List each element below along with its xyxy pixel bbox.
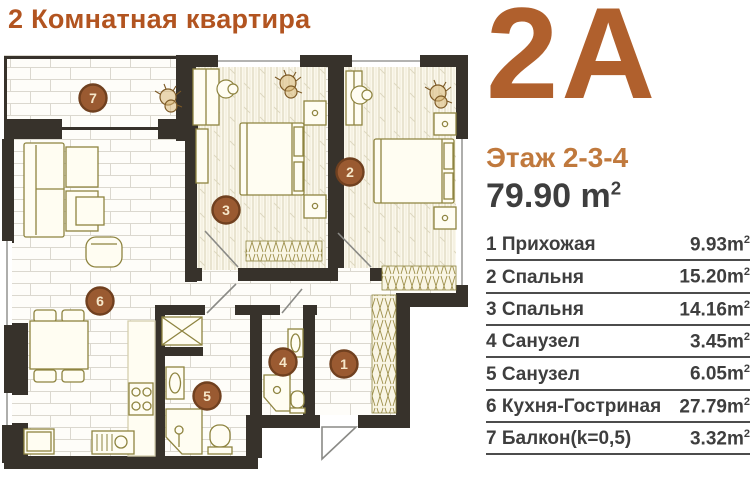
wall-hall-right	[396, 293, 410, 428]
wall-top-1	[190, 55, 220, 67]
room-area: 15.20m2	[679, 266, 750, 288]
room-row-1: 1 Прихожая 9.93m2	[486, 229, 750, 261]
room-area-value: 27.79	[679, 396, 727, 417]
total-area-value: 79.90	[486, 177, 571, 215]
wall-bath5-top-a	[165, 305, 205, 315]
info-panel: 2A Этаж 2-3-4 79.90 m2 1 Прихожая 9.93m2…	[486, 2, 750, 455]
badge-room-1: 1	[331, 351, 358, 378]
total-area-unit: m	[581, 177, 611, 215]
total-area: 79.90 m2	[486, 177, 750, 216]
room-row-6: 6 Кухня-Гостриная 27.79m2	[486, 391, 750, 423]
wall-bath5-bath4	[250, 305, 262, 458]
room-area-unit: m	[727, 396, 744, 417]
room-area-value: 14.16	[679, 299, 727, 320]
wall-washer-niche	[157, 347, 203, 356]
room-area: 3.32m2	[690, 428, 750, 450]
room-area: 14.16m2	[679, 299, 750, 321]
badge-room-5-number: 5	[203, 388, 211, 404]
wall-bedroom2-bottom	[370, 268, 382, 281]
room-name: 1 Прихожая	[486, 234, 596, 256]
room-row-5: 5 Санузел 6.05m2	[486, 358, 750, 390]
armchair	[86, 237, 122, 267]
room-area-value: 3.32	[690, 428, 727, 449]
room-area-unit-sup: 2	[744, 331, 750, 343]
room-area-unit-sup: 2	[744, 428, 750, 440]
room-area-unit-sup: 2	[744, 396, 750, 408]
wall-balcony-left	[4, 56, 7, 122]
room-area-unit-sup: 2	[744, 234, 750, 246]
badge-room-2-number: 2	[346, 164, 354, 180]
badge-room-6-number: 6	[96, 293, 104, 309]
room-name: 7 Балкон(k=0,5)	[486, 428, 631, 450]
room-row-7: 7 Балкон(k=0,5) 3.32m2	[486, 423, 750, 455]
badge-room-5: 5	[194, 383, 221, 410]
wall-bedroom3-bottom-b	[238, 268, 338, 281]
room-area-value: 3.45	[690, 331, 727, 352]
room-area: 3.45m2	[690, 331, 750, 353]
toilet-bath5	[208, 425, 232, 454]
room-area-unit: m	[727, 428, 744, 449]
room-area-unit: m	[727, 364, 744, 385]
badge-room-7-number: 7	[89, 90, 97, 106]
room-name: 6 Кухня-Гостриная	[486, 396, 661, 418]
room-name: 2 Спальня	[486, 267, 584, 289]
room-row-3: 3 Спальня 14.16m2	[486, 294, 750, 326]
badge-room-3: 3	[213, 197, 240, 224]
room-name: 3 Спальня	[486, 299, 584, 321]
floor-plan-svg: 7 3 2 6 5 4 1	[0, 55, 470, 471]
wall-bedroom3-bottom-a	[190, 268, 202, 281]
room-area-unit-sup: 2	[744, 363, 750, 375]
bed-bedroom2	[374, 139, 454, 203]
wall-balcony-top	[4, 56, 190, 59]
wall-living-bedroom3	[185, 139, 197, 282]
wall-balcony-glazing	[60, 127, 160, 130]
room-name: 4 Санузел	[486, 331, 580, 353]
room-row-2: 2 Спальня 15.20m2	[486, 261, 750, 293]
floor-plan: 7 3 2 6 5 4 1	[0, 55, 470, 471]
wall-left-upper	[2, 139, 14, 243]
page-title: 2 Комнатная квартира	[8, 4, 310, 35]
room-area-unit: m	[727, 299, 744, 320]
room-area-unit: m	[727, 267, 744, 288]
room-list: 1 Прихожая 9.93m2 2 Спальня 15.20m2 3 Сп…	[486, 229, 750, 455]
entrance-opening	[320, 415, 358, 428]
washing-machine	[162, 317, 202, 345]
wall-balcony-bottom-left	[4, 119, 62, 139]
badge-room-7: 7	[80, 85, 107, 112]
badge-room-3-number: 3	[222, 202, 230, 218]
badge-room-2: 2	[337, 159, 364, 186]
exterior-bottom-notch	[258, 428, 470, 471]
room-area-unit-sup: 2	[744, 299, 750, 311]
room-area-value: 15.20	[679, 267, 727, 288]
badge-room-4-number: 4	[279, 354, 287, 370]
sink-bath5	[166, 367, 184, 399]
room-name: 5 Санузел	[486, 364, 580, 386]
wall-bottom-kitchen	[4, 456, 258, 469]
hall-wardrobe	[372, 295, 396, 413]
wall-top-2	[300, 55, 354, 67]
badge-room-6: 6	[87, 288, 114, 315]
badge-room-1-number: 1	[340, 356, 348, 372]
room-area-value: 6.05	[690, 364, 727, 385]
room-area-unit: m	[727, 331, 744, 352]
toilet-bath4	[290, 391, 305, 413]
radiator-bedroom2	[382, 266, 456, 290]
bed-bedroom3	[240, 123, 304, 195]
room-row-4: 4 Санузел 3.45m2	[486, 326, 750, 358]
total-area-unit-sup: 2	[611, 178, 621, 199]
wall-bath4-hall	[303, 305, 315, 417]
room-area: 9.93m2	[690, 234, 750, 256]
room-area-unit: m	[727, 234, 744, 255]
room-area-unit-sup: 2	[744, 266, 750, 278]
kitchen-sink	[92, 431, 134, 454]
floor-label: Этаж 2-3-4	[486, 142, 750, 174]
kitchen-cabinet	[24, 429, 54, 454]
room-area: 6.05m2	[690, 363, 750, 385]
room-area: 27.79m2	[679, 396, 750, 418]
wall-right-upper	[456, 55, 468, 141]
room-area-value: 9.93	[690, 234, 727, 255]
coffee-table	[76, 197, 104, 225]
wall-left-pier	[4, 323, 28, 395]
unit-code: 2A	[486, 2, 750, 104]
rug-bedroom3	[246, 241, 322, 261]
badge-room-4: 4	[270, 349, 297, 376]
